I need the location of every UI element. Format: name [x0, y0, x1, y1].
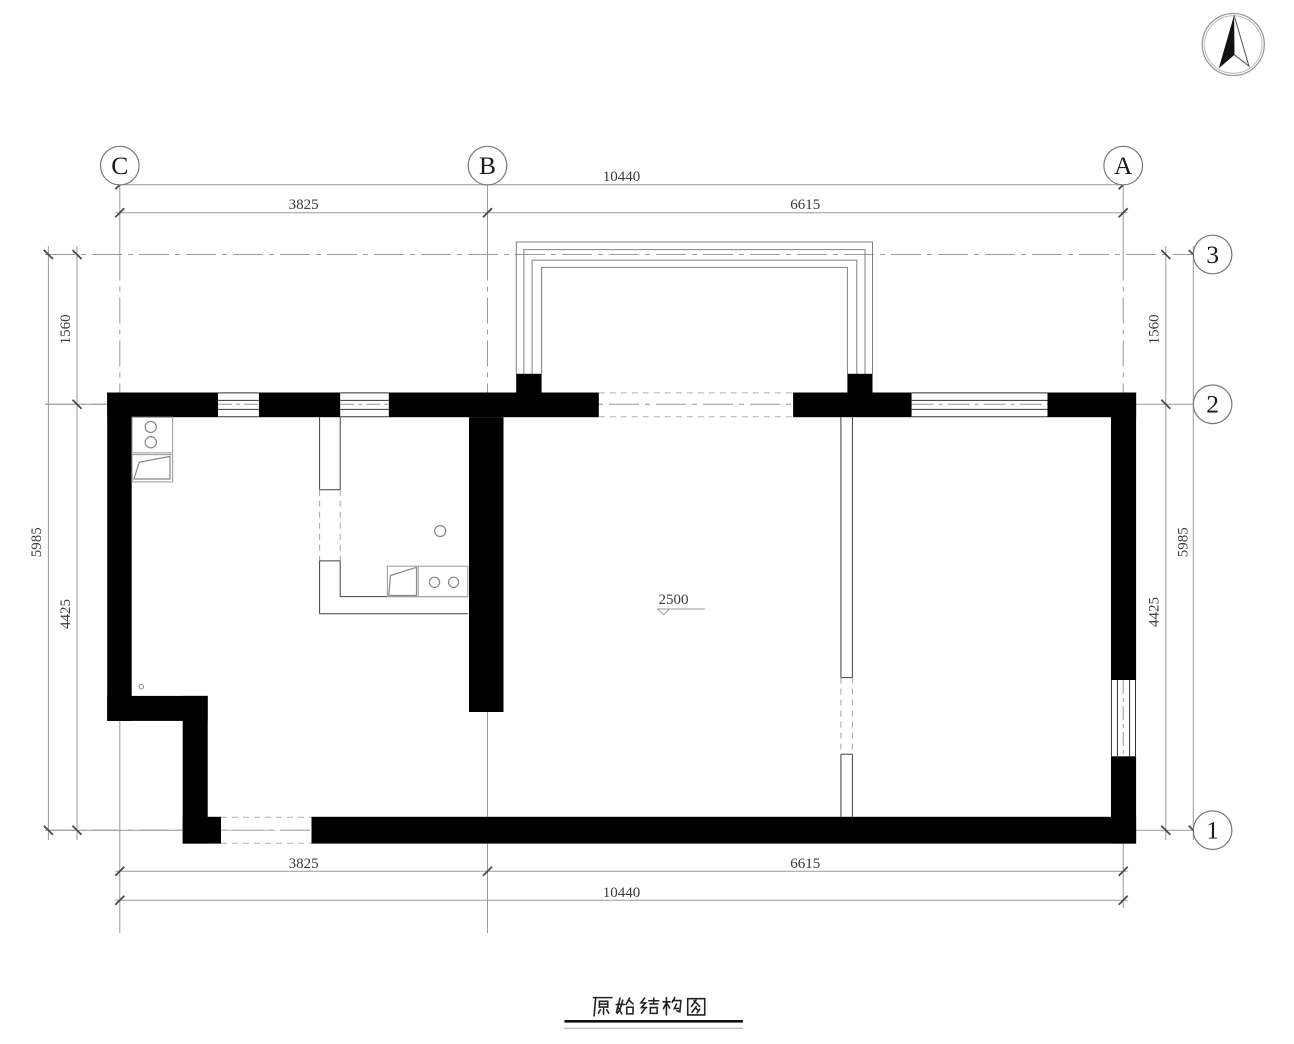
svg-text:6615: 6615	[790, 856, 820, 872]
svg-text:B: B	[479, 151, 496, 180]
svg-text:4425: 4425	[1147, 597, 1163, 627]
svg-text:5985: 5985	[1176, 527, 1192, 557]
svg-text:3825: 3825	[289, 197, 319, 213]
svg-text:1560: 1560	[1147, 314, 1163, 344]
svg-text:A: A	[1114, 151, 1133, 180]
svg-text:10440: 10440	[603, 169, 641, 185]
svg-text:2: 2	[1206, 390, 1219, 419]
svg-text:3: 3	[1206, 240, 1219, 269]
svg-text:10440: 10440	[603, 885, 641, 901]
svg-text:C: C	[111, 151, 128, 180]
svg-text:5985: 5985	[29, 527, 45, 557]
svg-text:2500: 2500	[659, 592, 689, 608]
svg-text:6615: 6615	[790, 197, 820, 213]
svg-text:4425: 4425	[58, 599, 74, 629]
svg-text:1560: 1560	[58, 314, 74, 344]
svg-text:3825: 3825	[289, 856, 319, 872]
svg-text:1: 1	[1206, 816, 1219, 845]
